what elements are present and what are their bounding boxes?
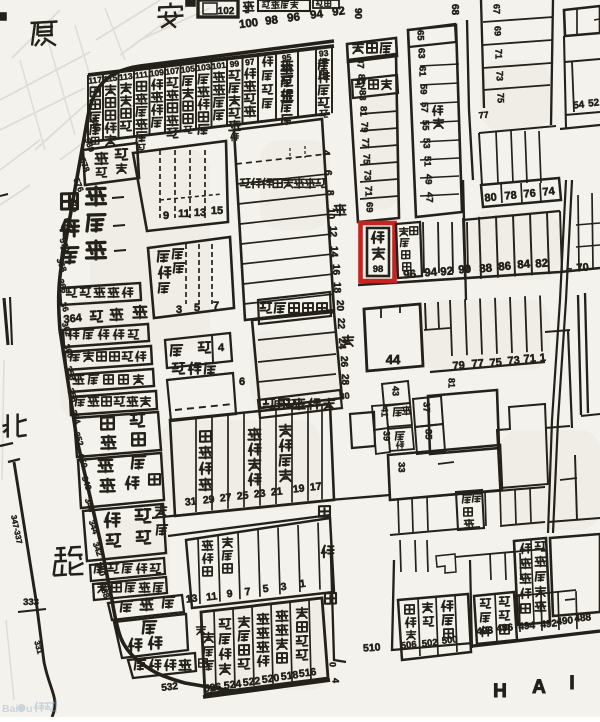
svg-text:13: 13 bbox=[185, 592, 198, 605]
svg-text:74: 74 bbox=[542, 185, 556, 198]
svg-text:51: 51 bbox=[422, 156, 433, 167]
svg-text:6: 6 bbox=[239, 376, 245, 388]
svg-text:61: 61 bbox=[417, 66, 428, 77]
svg-text:37: 37 bbox=[421, 402, 432, 413]
svg-text:96: 96 bbox=[287, 11, 301, 24]
svg-text:18: 18 bbox=[331, 282, 342, 294]
svg-text:25: 25 bbox=[236, 489, 249, 502]
svg-text:u: u bbox=[26, 703, 32, 715]
svg-text:20: 20 bbox=[334, 300, 345, 312]
svg-text:93: 93 bbox=[318, 48, 329, 59]
svg-text:65: 65 bbox=[415, 30, 426, 41]
svg-text:41: 41 bbox=[380, 407, 390, 417]
svg-text:Bai: Bai bbox=[2, 703, 18, 715]
svg-text:75: 75 bbox=[496, 93, 506, 103]
svg-text:4: 4 bbox=[331, 678, 341, 683]
svg-text:26: 26 bbox=[338, 356, 349, 368]
svg-text:103: 103 bbox=[196, 61, 212, 73]
svg-text:79: 79 bbox=[452, 360, 465, 373]
svg-text:86: 86 bbox=[498, 260, 512, 273]
svg-text:75: 75 bbox=[361, 154, 372, 165]
svg-text:111: 111 bbox=[134, 69, 149, 81]
svg-text:I: I bbox=[569, 673, 574, 694]
svg-text:76: 76 bbox=[523, 187, 536, 200]
svg-text:532: 532 bbox=[161, 681, 179, 694]
svg-text:117: 117 bbox=[88, 74, 103, 86]
svg-text:71: 71 bbox=[523, 353, 536, 366]
svg-text:107: 107 bbox=[165, 65, 181, 77]
svg-text:39: 39 bbox=[382, 431, 392, 441]
svg-text:13: 13 bbox=[194, 207, 206, 219]
svg-text:54: 54 bbox=[573, 99, 586, 111]
svg-text:59: 59 bbox=[418, 84, 429, 95]
svg-text:333: 333 bbox=[23, 597, 39, 608]
svg-text:19: 19 bbox=[292, 482, 305, 495]
svg-text:94: 94 bbox=[310, 8, 325, 22]
svg-text:44: 44 bbox=[386, 352, 401, 367]
svg-text:81: 81 bbox=[358, 106, 369, 117]
svg-text:69: 69 bbox=[493, 26, 503, 36]
svg-text:8: 8 bbox=[324, 190, 335, 196]
svg-text:522: 522 bbox=[242, 675, 261, 689]
svg-text:101: 101 bbox=[211, 60, 227, 72]
svg-text:520: 520 bbox=[261, 672, 280, 686]
svg-text:71: 71 bbox=[494, 49, 504, 59]
svg-text:4: 4 bbox=[218, 342, 225, 354]
svg-text:75: 75 bbox=[489, 357, 502, 370]
svg-text:33: 33 bbox=[396, 462, 407, 473]
svg-text:79: 79 bbox=[359, 122, 370, 133]
svg-text:12: 12 bbox=[327, 226, 338, 238]
svg-text:77: 77 bbox=[478, 110, 489, 121]
svg-text:84: 84 bbox=[517, 258, 531, 271]
svg-text:11: 11 bbox=[205, 590, 218, 603]
svg-text:22: 22 bbox=[335, 318, 346, 330]
svg-text:27: 27 bbox=[219, 491, 232, 504]
svg-text:7: 7 bbox=[213, 300, 219, 312]
svg-text:1: 1 bbox=[539, 352, 546, 364]
svg-text:87: 87 bbox=[355, 58, 366, 69]
svg-text:14: 14 bbox=[328, 246, 339, 258]
svg-text:518: 518 bbox=[280, 669, 299, 683]
svg-text:3: 3 bbox=[176, 304, 182, 316]
svg-text:98: 98 bbox=[373, 264, 384, 275]
svg-text:21: 21 bbox=[270, 485, 283, 498]
svg-text:4: 4 bbox=[320, 150, 331, 156]
svg-text:80: 80 bbox=[484, 191, 497, 204]
svg-text:524: 524 bbox=[223, 678, 242, 692]
svg-text:47: 47 bbox=[424, 192, 435, 203]
svg-text:2: 2 bbox=[245, 6, 250, 15]
svg-text:63: 63 bbox=[416, 48, 427, 59]
svg-text:510: 510 bbox=[363, 641, 381, 654]
svg-text:83: 83 bbox=[357, 90, 368, 101]
svg-text:29: 29 bbox=[202, 493, 215, 506]
svg-text:28: 28 bbox=[339, 374, 350, 386]
svg-text:77: 77 bbox=[360, 138, 371, 149]
svg-text:57: 57 bbox=[419, 102, 430, 113]
svg-text:73: 73 bbox=[362, 170, 373, 181]
svg-text:102: 102 bbox=[218, 6, 235, 17]
svg-text:98: 98 bbox=[265, 14, 280, 28]
svg-text:100: 100 bbox=[238, 17, 259, 31]
svg-text:68: 68 bbox=[449, 4, 460, 16]
svg-text:A: A bbox=[532, 677, 546, 698]
svg-text:71: 71 bbox=[363, 186, 374, 197]
svg-text:43: 43 bbox=[391, 386, 401, 396]
svg-text:17: 17 bbox=[309, 480, 322, 493]
svg-text:0: 0 bbox=[328, 662, 338, 667]
svg-text:90: 90 bbox=[458, 263, 472, 276]
svg-text:53: 53 bbox=[421, 138, 432, 149]
svg-text:81: 81 bbox=[447, 378, 457, 388]
svg-text:498: 498 bbox=[476, 625, 494, 637]
svg-text:55: 55 bbox=[420, 120, 431, 131]
svg-text:15: 15 bbox=[211, 205, 223, 217]
svg-text:73: 73 bbox=[507, 355, 520, 368]
svg-text:92: 92 bbox=[332, 5, 346, 18]
svg-text:78: 78 bbox=[504, 189, 517, 202]
svg-text:69: 69 bbox=[364, 202, 375, 213]
svg-text:73: 73 bbox=[495, 71, 505, 81]
svg-text:113: 113 bbox=[118, 71, 133, 83]
svg-text:94: 94 bbox=[424, 266, 438, 279]
svg-text:11: 11 bbox=[178, 208, 190, 220]
svg-text:109: 109 bbox=[149, 67, 165, 79]
svg-text:16: 16 bbox=[330, 264, 341, 276]
svg-text:6: 6 bbox=[322, 170, 333, 176]
svg-text:88: 88 bbox=[479, 262, 493, 275]
svg-text:67: 67 bbox=[492, 4, 502, 14]
svg-text:516: 516 bbox=[298, 666, 317, 680]
svg-text:9: 9 bbox=[163, 210, 169, 222]
svg-text:52: 52 bbox=[588, 97, 600, 109]
svg-text:31: 31 bbox=[184, 495, 197, 508]
svg-text:90: 90 bbox=[352, 8, 363, 20]
svg-text:99: 99 bbox=[229, 58, 240, 69]
svg-text:92: 92 bbox=[440, 265, 454, 278]
svg-text:23: 23 bbox=[253, 487, 266, 500]
svg-text:82: 82 bbox=[535, 257, 549, 270]
svg-text:115: 115 bbox=[103, 72, 118, 84]
svg-text:105: 105 bbox=[180, 63, 196, 75]
svg-text:49: 49 bbox=[423, 174, 434, 185]
svg-text:85: 85 bbox=[356, 74, 367, 85]
svg-text:5: 5 bbox=[194, 302, 200, 314]
svg-text:97: 97 bbox=[245, 56, 256, 67]
svg-text:496: 496 bbox=[496, 622, 514, 634]
svg-text:77: 77 bbox=[471, 358, 484, 371]
svg-text:H: H bbox=[493, 681, 507, 702]
